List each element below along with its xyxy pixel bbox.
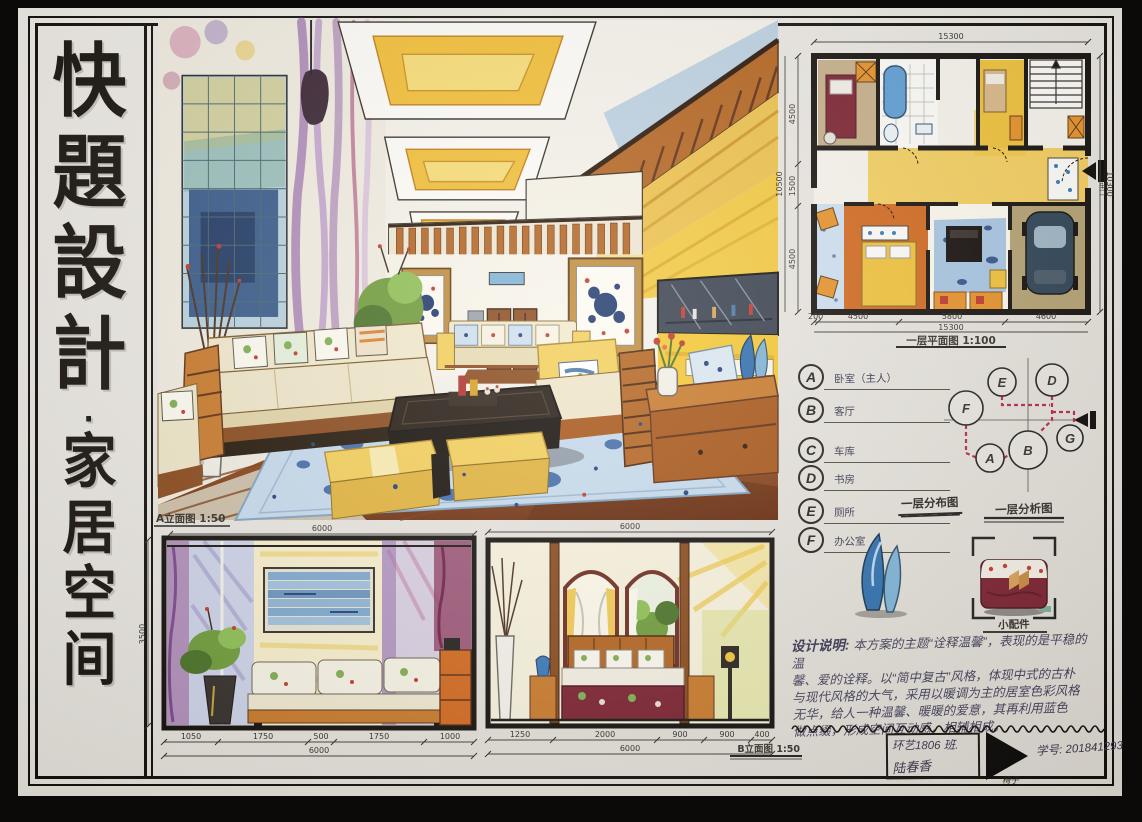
legend-key: D <box>798 465 824 491</box>
title-char: 設 <box>53 224 127 304</box>
elevation-b-title: B立面图 1:50 <box>737 743 800 755</box>
legend-key: B <box>798 397 824 423</box>
design-description-heading: 设计说明: <box>791 638 850 655</box>
svg-text:10500: 10500 <box>775 171 784 196</box>
svg-text:1000: 1000 <box>440 732 460 741</box>
svg-text:1750: 1750 <box>369 732 389 741</box>
presentation-board: 快 題 設 計 · 家 居 空 间 <box>18 8 1122 796</box>
elevation-b-drawing <box>491 543 769 723</box>
svg-text:6000: 6000 <box>312 524 332 533</box>
svg-text:3500: 3500 <box>138 624 147 644</box>
legend-label: 书房 <box>834 472 855 487</box>
bubble-nodes <box>949 364 1083 472</box>
student-name: 陆春香 <box>891 752 974 777</box>
legend-row: A 卧室（主人） <box>798 363 950 390</box>
svg-text:E: E <box>998 375 1007 390</box>
bubble-diagram-caption: 一层分析图 <box>995 501 1053 517</box>
class-line: 环艺1806 班. <box>892 737 974 754</box>
svg-text:15300: 15300 <box>938 323 963 332</box>
svg-text:10300: 10300 <box>1105 171 1114 196</box>
legend-label: 厕所 <box>834 505 855 520</box>
svg-text:4500: 4500 <box>848 312 868 321</box>
class-name-box: 环艺1806 班. 陆春香 <box>886 733 980 780</box>
elevation-b-bed <box>562 636 684 720</box>
elevation-a-title: A立面图 1:50 <box>156 512 225 525</box>
svg-text:400: 400 <box>754 730 769 739</box>
elevation-a-drawing <box>167 541 471 726</box>
legend-row: C 车库 <box>798 436 950 463</box>
far-left-armchair <box>158 384 203 499</box>
legend-key: C <box>798 437 824 463</box>
garage <box>1010 204 1088 312</box>
svg-text:1750: 1750 <box>253 732 273 741</box>
svg-text:15300: 15300 <box>938 32 963 41</box>
svg-text:1050: 1050 <box>181 732 201 741</box>
elevation-a-dimensions: 1050 1750 500 1750 1000 6000 <box>161 732 477 759</box>
svg-text:900: 900 <box>672 730 687 739</box>
svg-text:6000: 6000 <box>620 744 640 753</box>
title-char: 空 <box>63 565 117 623</box>
elevation-a: A立面图 1:50 6000 3500 <box>134 510 482 772</box>
accessories-sketches: 小配件 <box>833 526 1105 634</box>
display-cabinet <box>658 273 778 336</box>
title-char: 居 <box>63 499 117 557</box>
title-char: 快 <box>53 42 127 122</box>
svg-text:6000: 6000 <box>620 522 640 531</box>
svg-text:6000: 6000 <box>309 746 329 755</box>
svg-text:1500: 1500 <box>788 176 797 196</box>
title-char: 計 <box>53 315 127 395</box>
leaf-vase-sketch <box>855 534 907 618</box>
living-room-perspective-rendering <box>158 20 778 520</box>
photo-background: 快 題 設 計 · 家 居 空 间 <box>0 0 1142 822</box>
legend-label: 卧室（主人） <box>834 370 897 386</box>
legend-key: A <box>798 364 824 390</box>
elevation-b-dimensions: 1250 2000 900 900 400 6000 B立面图 1:50 <box>485 730 802 759</box>
elevation-b: 6000 <box>472 518 802 776</box>
elevation-a-sofa <box>248 658 448 726</box>
accessories-caption: 小配件 <box>997 617 1030 631</box>
entry-label: 进口 <box>1098 182 1106 196</box>
floor-plan: 进口 15300 4500 1500 4500 10500 10300 200 … <box>778 30 1108 348</box>
svg-text:5800: 5800 <box>942 312 962 321</box>
triangle-logo-label: 椅子 <box>1002 774 1019 786</box>
plan-title: 一层平面图 1:100 <box>906 335 996 347</box>
entry-arrow-icon <box>1074 413 1088 427</box>
title-char: 題 <box>53 133 127 213</box>
svg-text:1250: 1250 <box>510 730 530 739</box>
svg-text:500: 500 <box>313 732 328 741</box>
svg-text:B: B <box>1023 443 1032 458</box>
student-id: 学号: 201841293 <box>1036 737 1124 759</box>
svg-text:D: D <box>1047 373 1057 388</box>
pillow-sketch <box>973 538 1055 618</box>
title-separator-dot: · <box>84 408 95 430</box>
svg-text:G: G <box>1065 431 1075 446</box>
svg-text:2000: 2000 <box>595 730 615 739</box>
svg-text:4600: 4600 <box>1036 312 1056 321</box>
board-title-vertical: 快 題 設 計 · 家 居 空 间 <box>35 23 147 779</box>
legend-row: B 客厅 <box>798 396 950 423</box>
triangle-logo-icon <box>986 732 1028 780</box>
title-char: 家 <box>63 433 117 491</box>
signature-block: 环艺1806 班. 陆春香 椅子 学号: 201841293 <box>886 730 1114 782</box>
circulation-bubble-diagram: E D F A B G 一层分析图 <box>940 350 1108 532</box>
stairs <box>1030 60 1082 108</box>
svg-text:200: 200 <box>808 312 823 321</box>
svg-text:F: F <box>962 401 971 416</box>
svg-text:4500: 4500 <box>788 249 797 269</box>
svg-text:A: A <box>984 451 994 466</box>
legend-label: 车库 <box>834 444 855 459</box>
legend-label: 客厅 <box>834 404 855 419</box>
room-legend: A 卧室（主人） B 客厅 C 车库 D 书房 E 厕所 F 办公室 <box>798 358 950 553</box>
svg-text:900: 900 <box>719 730 734 739</box>
plan-rooms <box>814 56 1088 312</box>
legend-row: D 书房 <box>798 464 950 491</box>
svg-text:4500: 4500 <box>788 104 797 124</box>
title-char: 间 <box>63 631 117 689</box>
